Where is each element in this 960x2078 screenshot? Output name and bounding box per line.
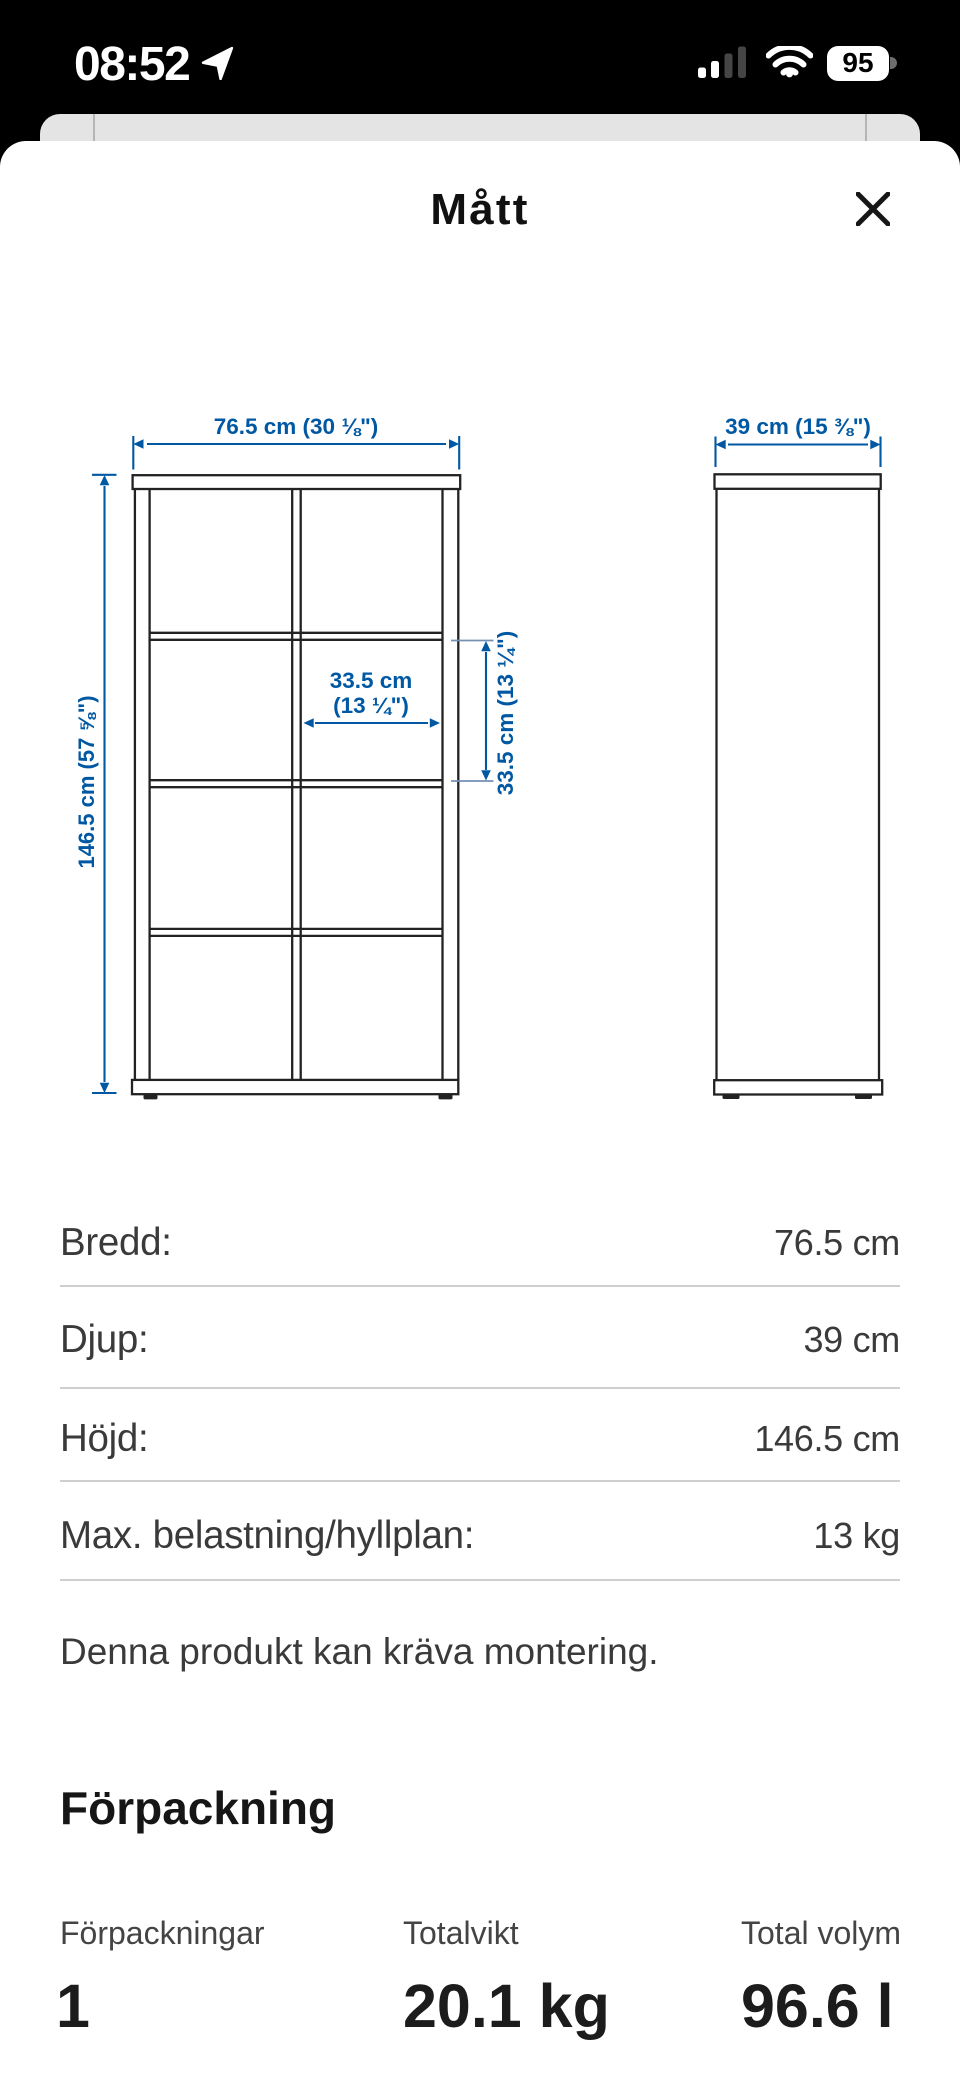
svg-text:33.5 cm (13 ¼"): 33.5 cm (13 ¼") [493,631,518,796]
svg-text:39 cm (15 ⅜"): 39 cm (15 ⅜") [725,414,871,439]
svg-text:33.5 cm: 33.5 cm [330,668,413,693]
svg-text:76.5 cm (30 ⅛"): 76.5 cm (30 ⅛") [214,414,379,439]
svg-text:146.5 cm (57 ⅝"): 146.5 cm (57 ⅝") [74,695,99,868]
svg-text:(13 ¼"): (13 ¼") [333,693,409,718]
